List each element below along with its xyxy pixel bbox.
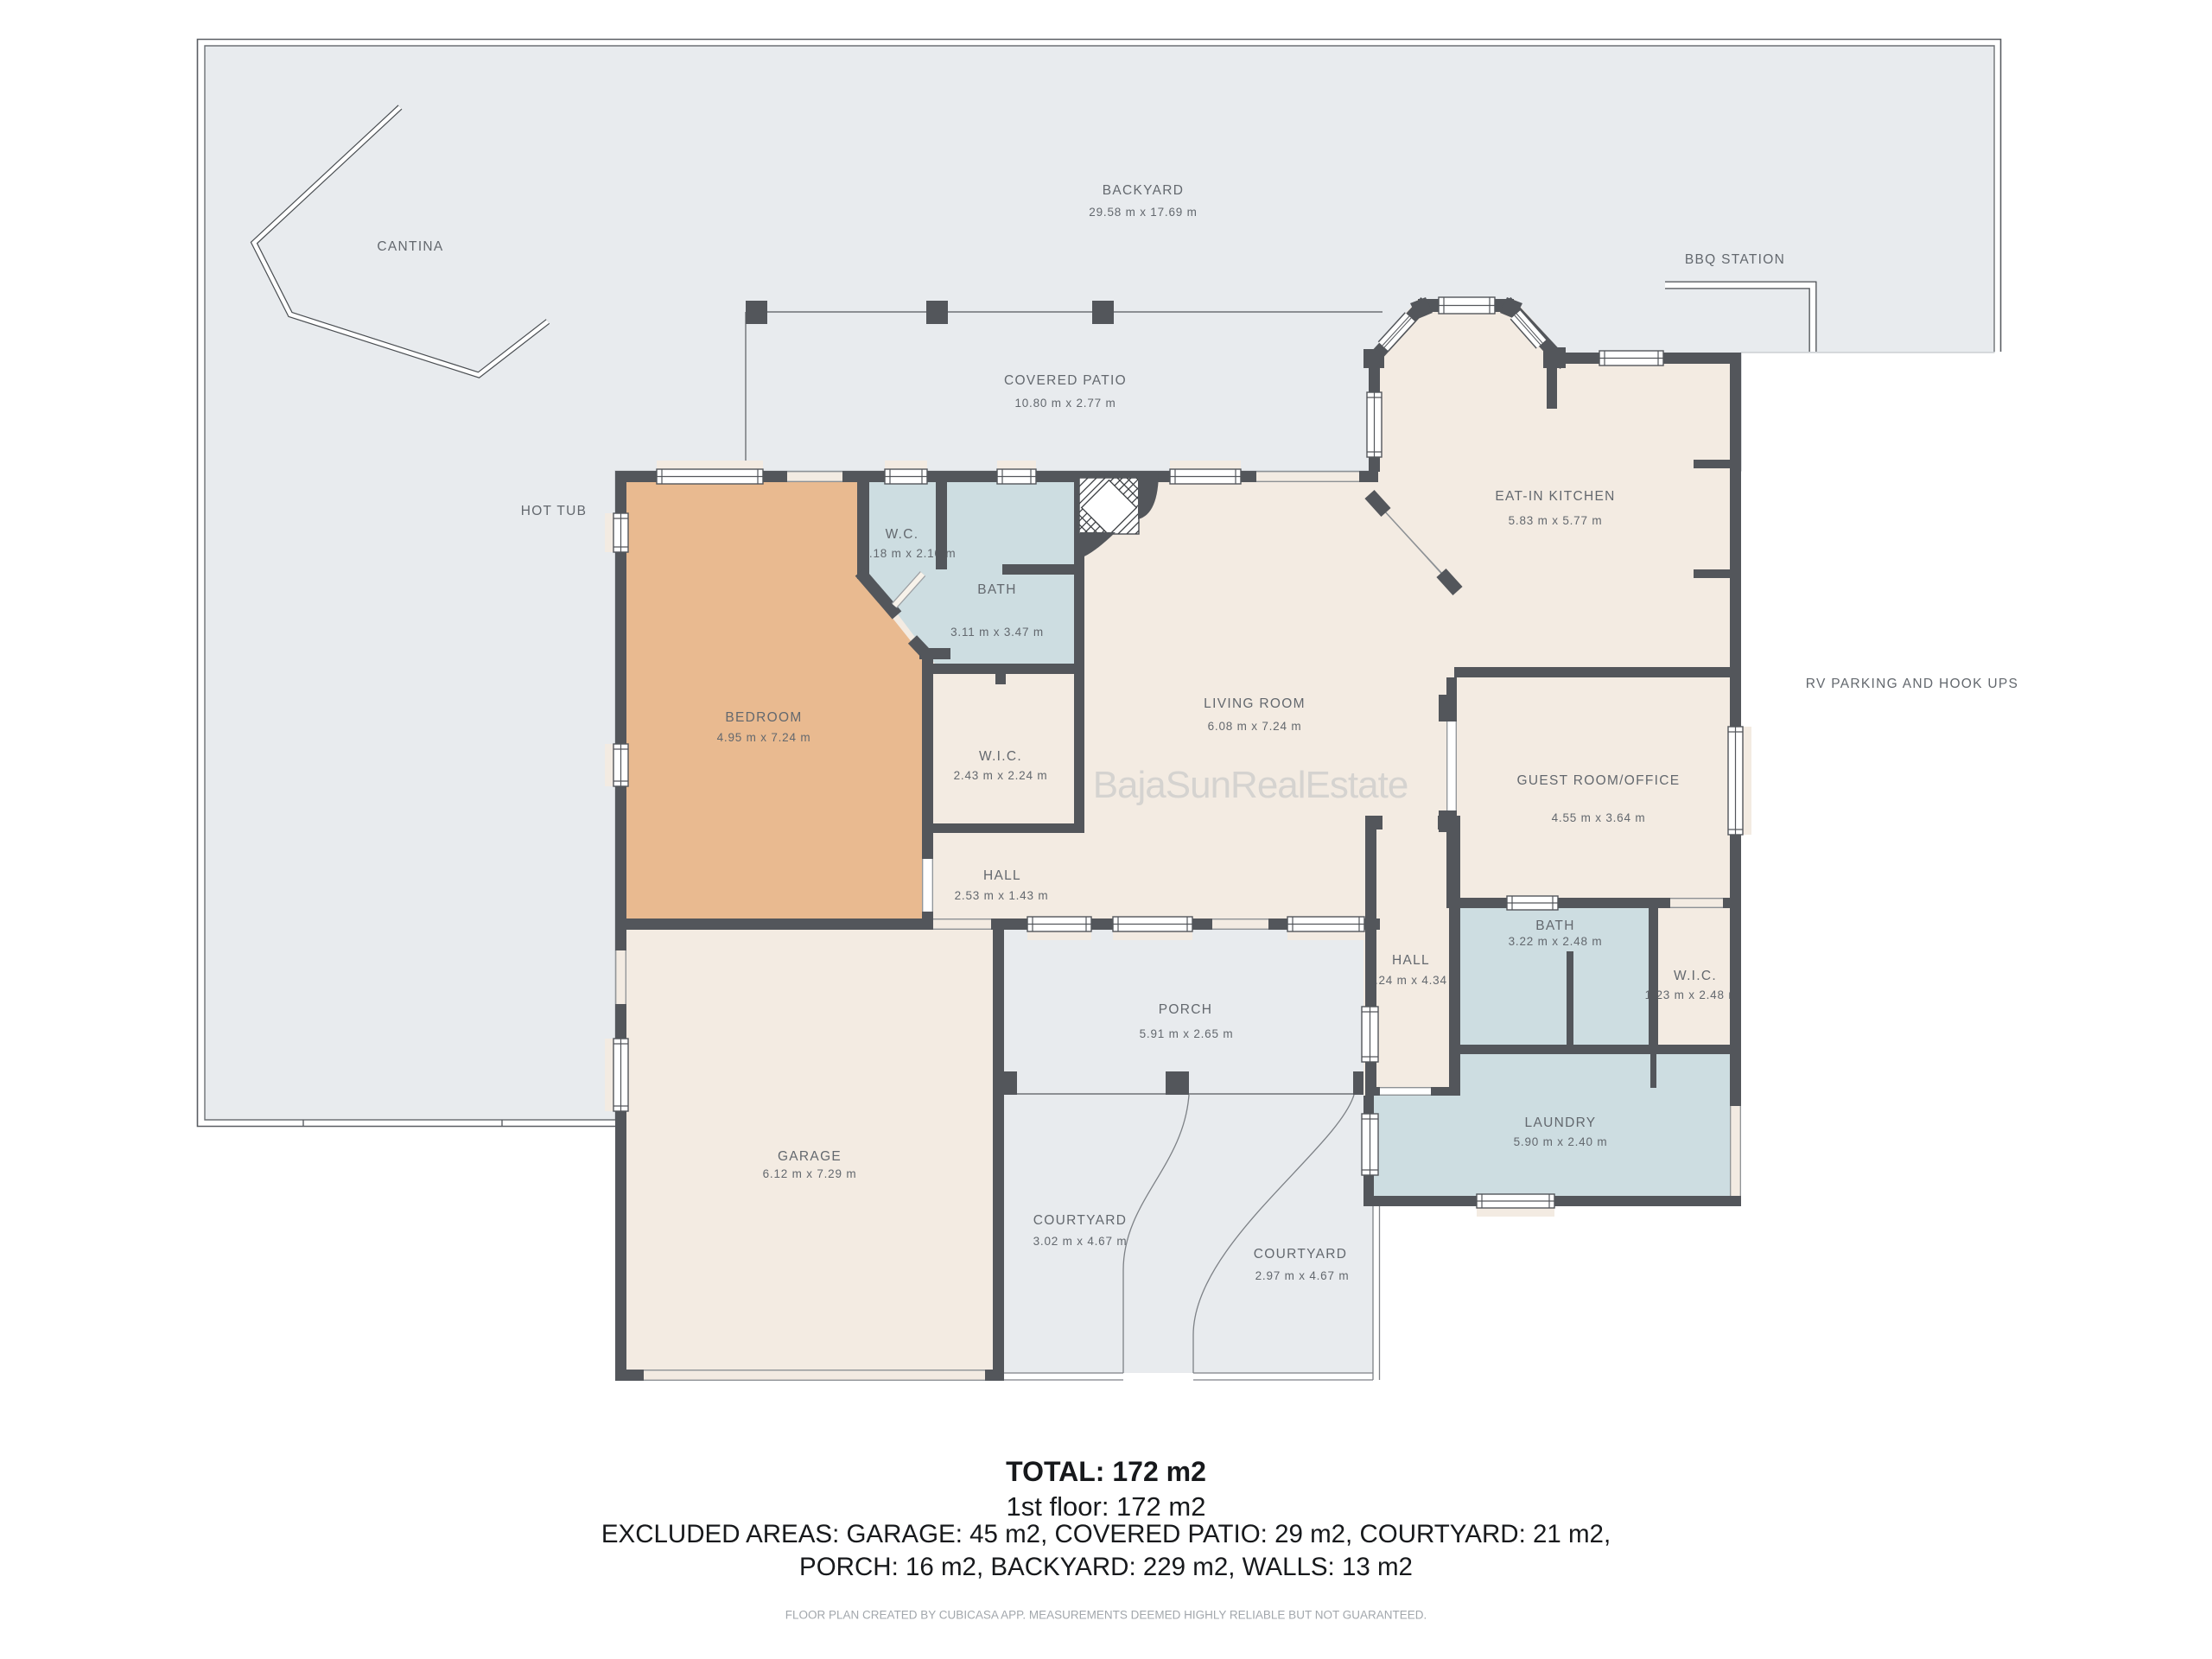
svg-text:BBQ STATION: BBQ STATION xyxy=(1685,252,1785,267)
svg-text:BACKYARD: BACKYARD xyxy=(1103,183,1185,198)
svg-text:EXCLUDED AREAS: GARAGE: 45 m2,: EXCLUDED AREAS: GARAGE: 45 m2, COVERED P… xyxy=(601,1520,1611,1548)
svg-text:4.55 m x 3.64 m: 4.55 m x 3.64 m xyxy=(1552,811,1646,824)
svg-text:FLOOR PLAN CREATED BY CUBICASA: FLOOR PLAN CREATED BY CUBICASA APP. MEAS… xyxy=(785,1609,1427,1622)
svg-text:10.80 m x 2.77 m: 10.80 m x 2.77 m xyxy=(1014,397,1116,410)
svg-text:1.23 m x 2.48 m: 1.23 m x 2.48 m xyxy=(1645,988,1739,1001)
svg-text:W.I.C.: W.I.C. xyxy=(979,749,1022,764)
svg-text:HOT TUB: HOT TUB xyxy=(521,504,588,518)
svg-text:BajaSunRealEstate: BajaSunRealEstate xyxy=(1093,764,1408,806)
svg-text:W.C.: W.C. xyxy=(886,527,919,542)
svg-text:EAT-IN KITCHEN: EAT-IN KITCHEN xyxy=(1495,489,1615,504)
svg-text:3.02 m x 4.67 m: 3.02 m x 4.67 m xyxy=(1033,1235,1128,1248)
svg-text:HALL: HALL xyxy=(1392,953,1430,968)
svg-text:3.11 m x 3.47 m: 3.11 m x 3.47 m xyxy=(950,626,1044,639)
svg-text:COURTYARD: COURTYARD xyxy=(1033,1213,1127,1228)
svg-text:PORCH: 16 m2, BACKYARD: 229 m2: PORCH: 16 m2, BACKYARD: 229 m2, WALLS: 1… xyxy=(799,1553,1413,1581)
svg-text:1st floor: 172 m2: 1st floor: 172 m2 xyxy=(1007,1491,1206,1522)
svg-text:6.08 m x 7.24 m: 6.08 m x 7.24 m xyxy=(1208,720,1302,733)
svg-text:W.I.C.: W.I.C. xyxy=(1674,969,1717,983)
svg-text:BATH: BATH xyxy=(1535,918,1574,933)
svg-text:5.83 m x 5.77 m: 5.83 m x 5.77 m xyxy=(1509,514,1603,527)
svg-text:HALL: HALL xyxy=(983,868,1021,883)
svg-text:GUEST ROOM/OFFICE: GUEST ROOM/OFFICE xyxy=(1517,773,1681,788)
svg-text:5.91 m x 2.65 m: 5.91 m x 2.65 m xyxy=(1140,1027,1234,1040)
svg-text:2.43 m x 2.24 m: 2.43 m x 2.24 m xyxy=(954,769,1048,782)
svg-text:4.95 m x 7.24 m: 4.95 m x 7.24 m xyxy=(717,731,811,744)
svg-text:2.53 m x 1.43 m: 2.53 m x 1.43 m xyxy=(955,889,1049,902)
svg-text:LAUNDRY: LAUNDRY xyxy=(1525,1116,1597,1130)
svg-text:COVERED PATIO: COVERED PATIO xyxy=(1004,373,1127,388)
svg-text:LIVING ROOM: LIVING ROOM xyxy=(1204,696,1306,711)
svg-text:6.12 m x 7.29 m: 6.12 m x 7.29 m xyxy=(763,1167,857,1180)
svg-text:2.97 m x 4.67 m: 2.97 m x 4.67 m xyxy=(1255,1269,1350,1282)
svg-text:TOTAL: 172 m2: TOTAL: 172 m2 xyxy=(1006,1456,1206,1487)
svg-text:5.90 m x 2.40 m: 5.90 m x 2.40 m xyxy=(1514,1135,1608,1148)
svg-text:RV PARKING AND HOOK UPS: RV PARKING AND HOOK UPS xyxy=(1806,677,2018,691)
svg-text:COURTYARD: COURTYARD xyxy=(1254,1247,1347,1262)
svg-text:29.58 m x 17.69 m: 29.58 m x 17.69 m xyxy=(1089,206,1197,219)
svg-text:1.24 m x 4.34 m: 1.24 m x 4.34 m xyxy=(1368,974,1462,987)
svg-text:BEDROOM: BEDROOM xyxy=(725,710,802,725)
svg-text:PORCH: PORCH xyxy=(1159,1002,1212,1017)
svg-text:CANTINA: CANTINA xyxy=(377,239,443,254)
svg-text:GARAGE: GARAGE xyxy=(778,1149,842,1164)
svg-text:BATH: BATH xyxy=(977,582,1016,597)
svg-text:3.22 m x 2.48 m: 3.22 m x 2.48 m xyxy=(1509,935,1603,948)
